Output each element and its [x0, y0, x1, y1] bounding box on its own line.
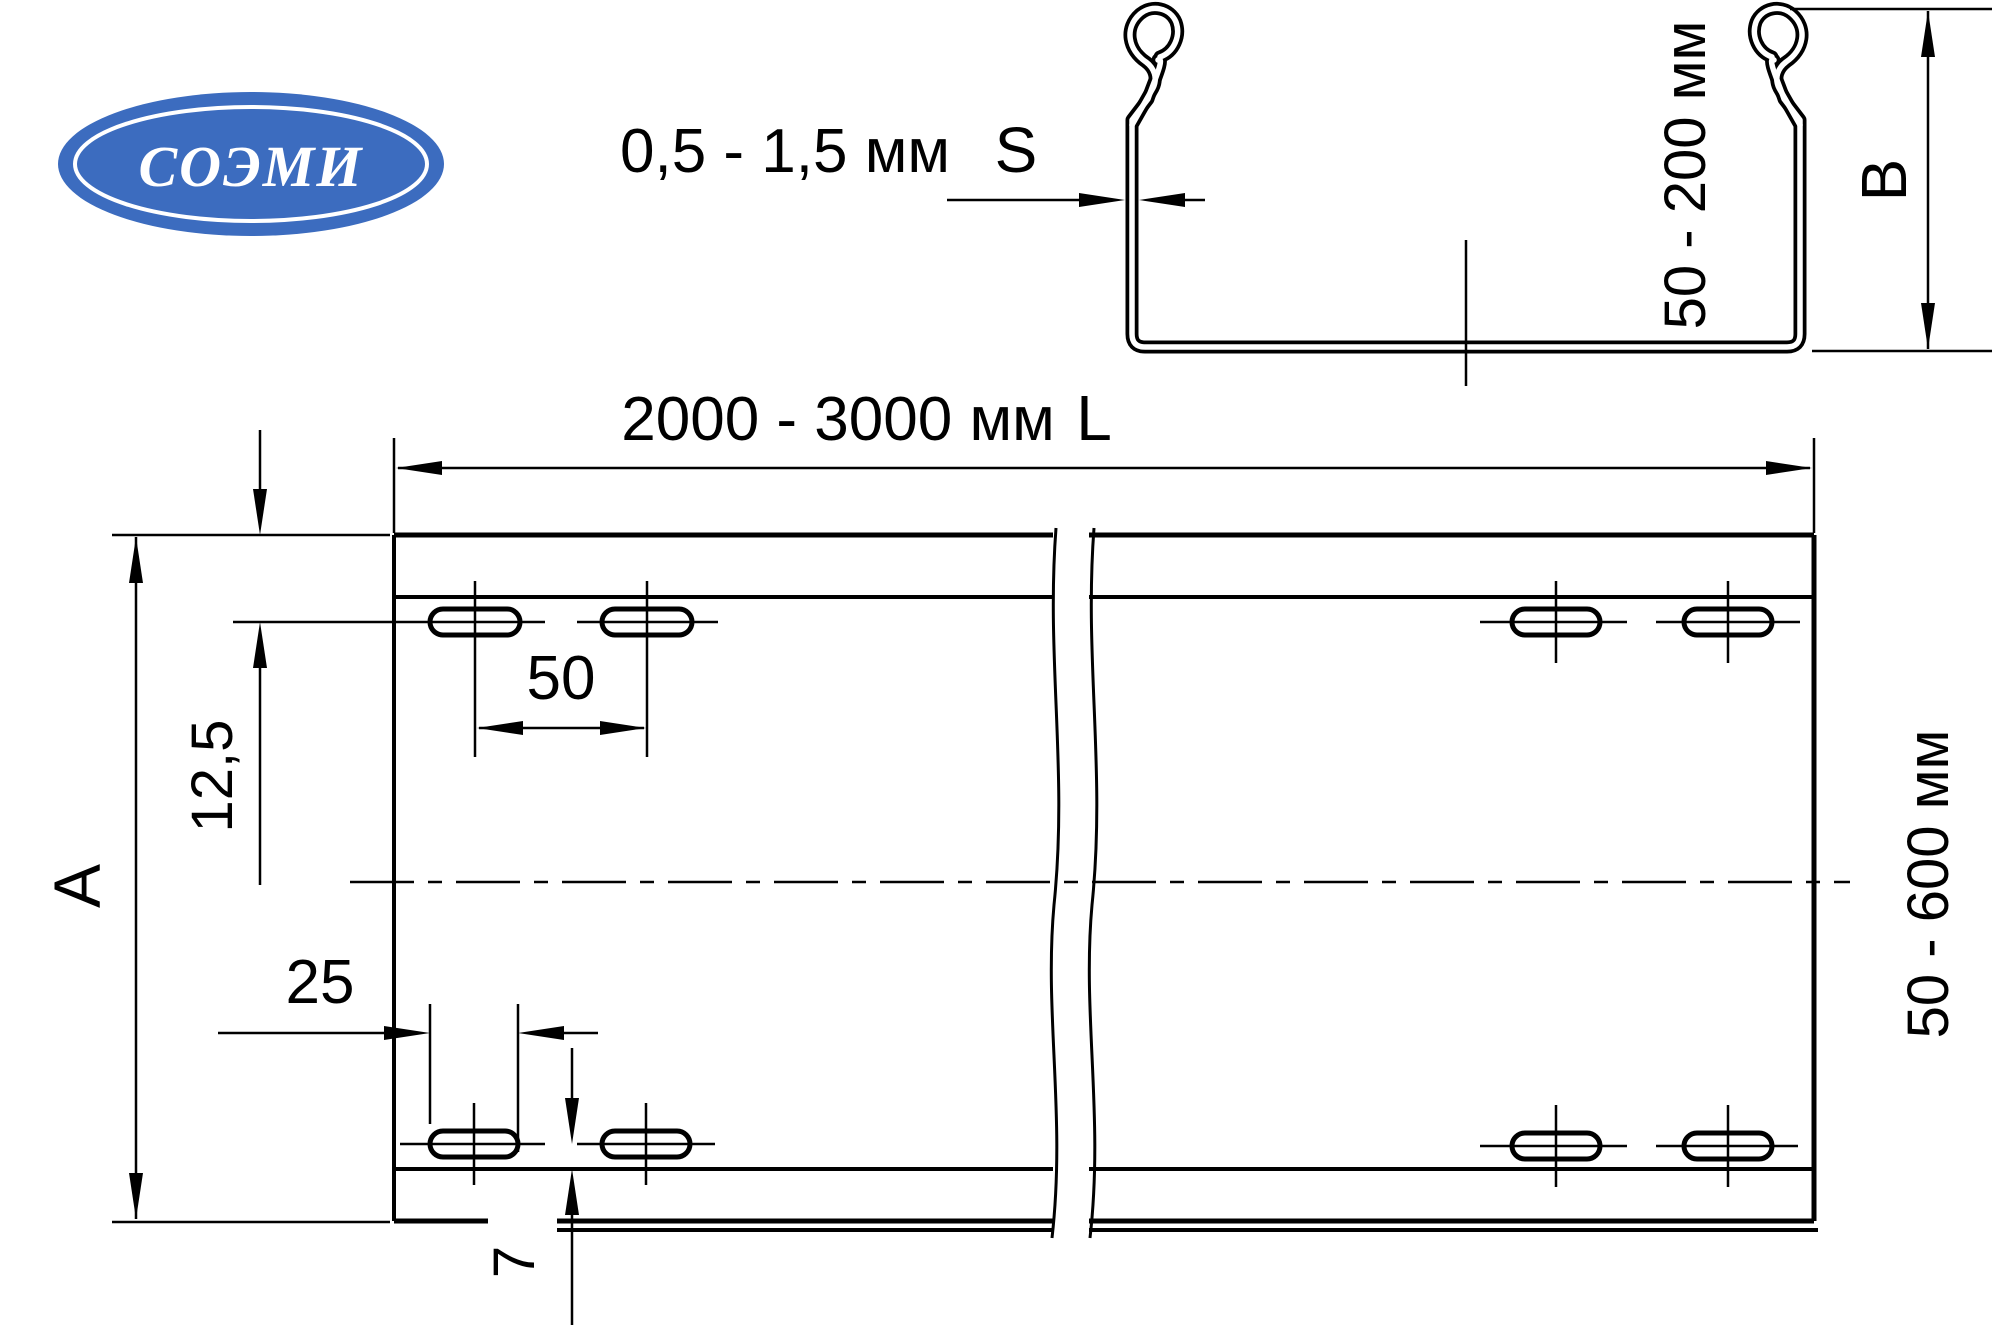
arrowhead-down-icon: [1921, 303, 1935, 349]
thickness-dimension: 0,5 - 1,5 мм S: [620, 114, 1205, 207]
arrowhead-left-icon: [477, 721, 523, 735]
arrowhead-down-icon: [253, 489, 267, 535]
arrowhead-up-icon: [253, 622, 267, 668]
arrowhead-up-icon: [565, 1169, 579, 1215]
arrowhead-right-icon: [1079, 193, 1125, 207]
hole-length-dimension: 25: [218, 948, 598, 1152]
slot-group-bottom-right: [1480, 1105, 1798, 1187]
cross-section-view: 0,5 - 1,5 мм S B 50 - 200 мм: [620, 8, 1992, 386]
arrowhead-up-icon: [1921, 11, 1935, 57]
arrowhead-right-icon: [384, 1026, 430, 1040]
width-symbol-label: A: [40, 864, 114, 908]
offset-bottom-label: 7: [482, 1246, 547, 1278]
thickness-range-label: 0,5 - 1,5 мм: [620, 117, 950, 186]
arrowhead-up-icon: [129, 537, 143, 583]
company-logo: СОЭМИ: [58, 92, 444, 236]
length-range-label: 2000 - 3000 мм: [621, 385, 1054, 454]
logo-text: СОЭМИ: [138, 134, 363, 199]
slot-group-top-left: [233, 581, 718, 757]
offset-top-label: 12,5: [180, 720, 245, 833]
arrowhead-left-icon: [1139, 193, 1185, 207]
pitch-label: 50: [527, 644, 596, 713]
width-dimension: A: [40, 535, 390, 1222]
pitch-dimension: 50: [477, 644, 646, 735]
break-wave-line-left: [1051, 528, 1059, 1238]
hole-length-label: 25: [286, 948, 355, 1017]
arrowhead-right-icon: [1766, 461, 1812, 475]
height-range-label: 50 - 200 мм: [1653, 21, 1718, 330]
length-dimension: 2000 - 3000 мм L: [394, 382, 1814, 533]
arrowhead-right-icon: [600, 721, 646, 735]
slot-group-bottom-left: [400, 1103, 715, 1185]
drawing-page: СОЭМИ 0,5 - 1,5 мм S B 50 - 200 мм: [0, 0, 2000, 1333]
slot-group-top-right: [1480, 581, 1800, 663]
arrowhead-left-icon: [396, 461, 442, 475]
plan-view: 2000 - 3000 мм L A 12,5 50: [40, 382, 1961, 1325]
thickness-symbol-label: S: [995, 114, 1038, 186]
arrowhead-left-icon: [518, 1026, 564, 1040]
length-symbol-label: L: [1076, 382, 1112, 454]
height-symbol-label: B: [1848, 159, 1920, 202]
height-dimension: B 50 - 200 мм: [1653, 9, 1992, 351]
arrowhead-down-icon: [565, 1098, 579, 1144]
offset-top-dimension: 12,5: [180, 430, 267, 885]
arrowhead-down-icon: [129, 1173, 143, 1219]
cable-tray-drawing: СОЭМИ 0,5 - 1,5 мм S B 50 - 200 мм: [0, 0, 2000, 1333]
offset-bottom-dimension: 7: [482, 1048, 579, 1325]
width-range-label: 50 - 600 мм: [1896, 730, 1961, 1039]
